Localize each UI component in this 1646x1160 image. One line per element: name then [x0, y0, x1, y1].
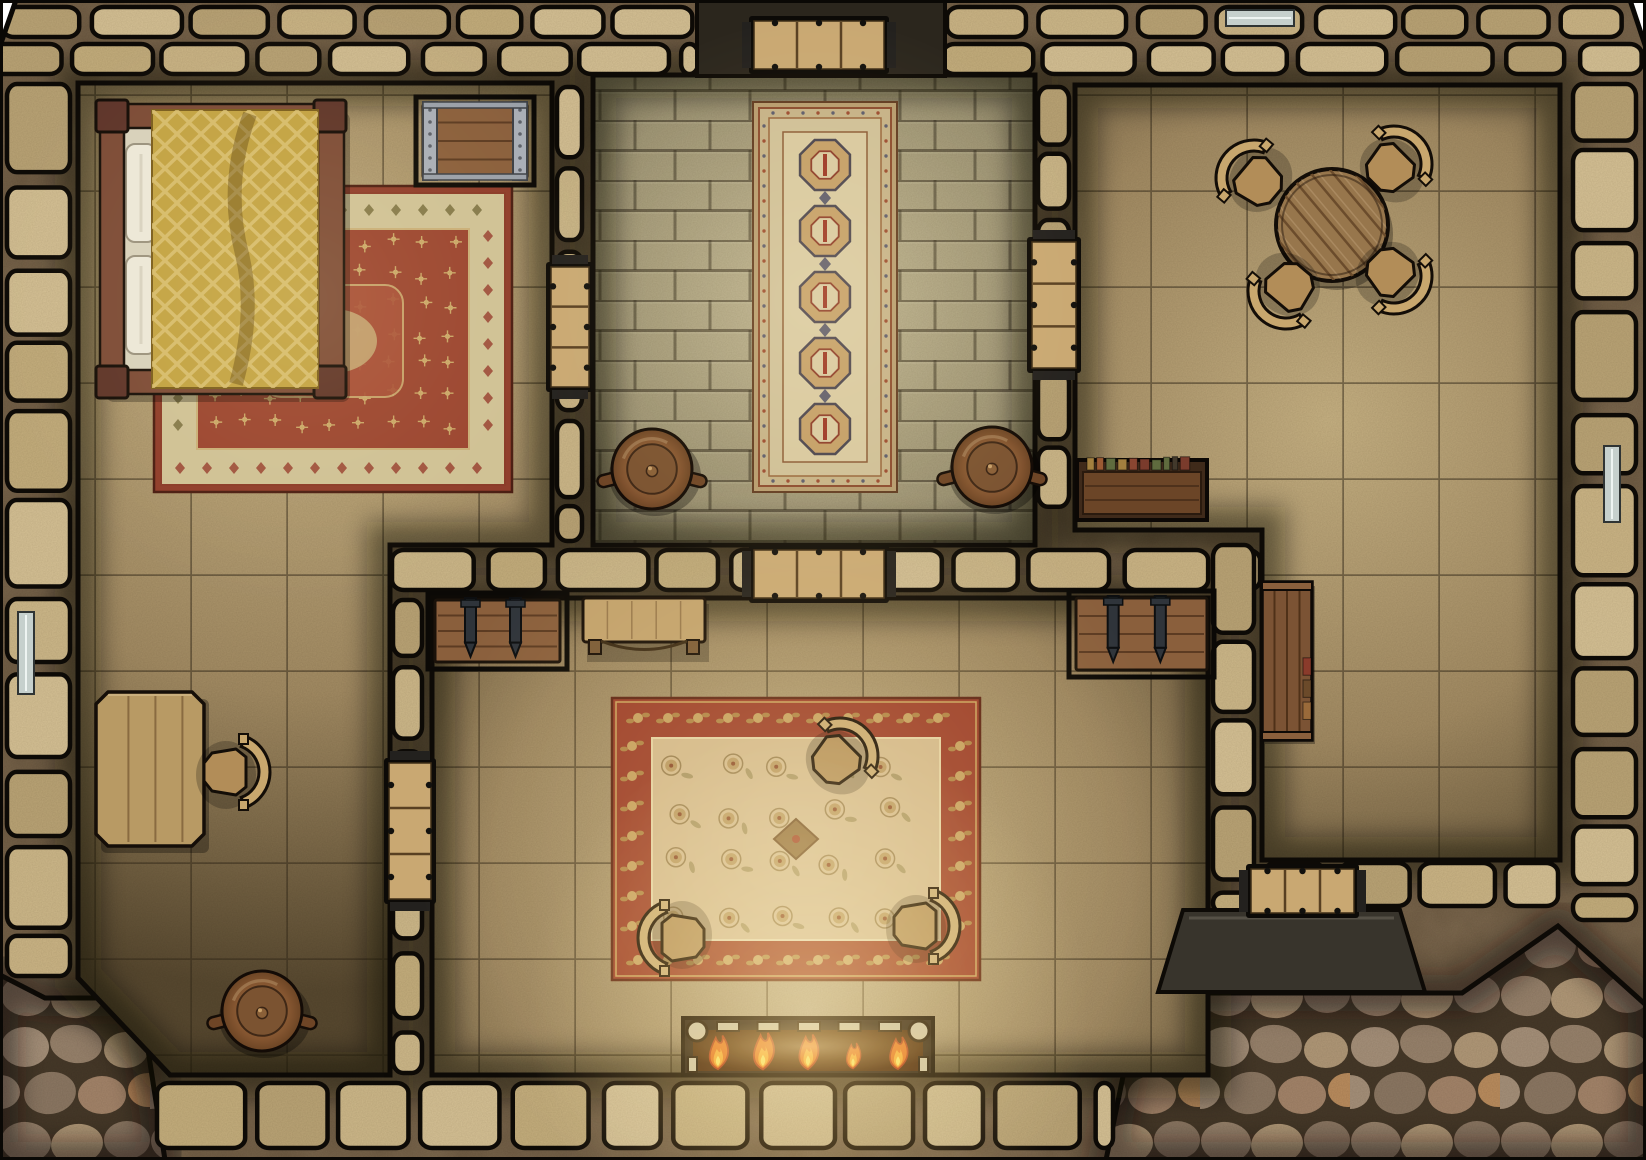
- window-north: [1226, 10, 1294, 26]
- bookshelf: [1077, 457, 1207, 520]
- door-dining-courtyard: [1239, 864, 1366, 918]
- light-glow: [535, 20, 1095, 580]
- desk: [96, 692, 209, 853]
- courtyard-step: [1158, 910, 1425, 992]
- light-glow: [0, 0, 600, 600]
- wardrobe: [1262, 582, 1315, 744]
- window-west: [18, 612, 34, 694]
- battle-map-canvas: [0, 0, 1646, 1160]
- battle-map: [0, 0, 1646, 1160]
- window-east: [1604, 446, 1620, 522]
